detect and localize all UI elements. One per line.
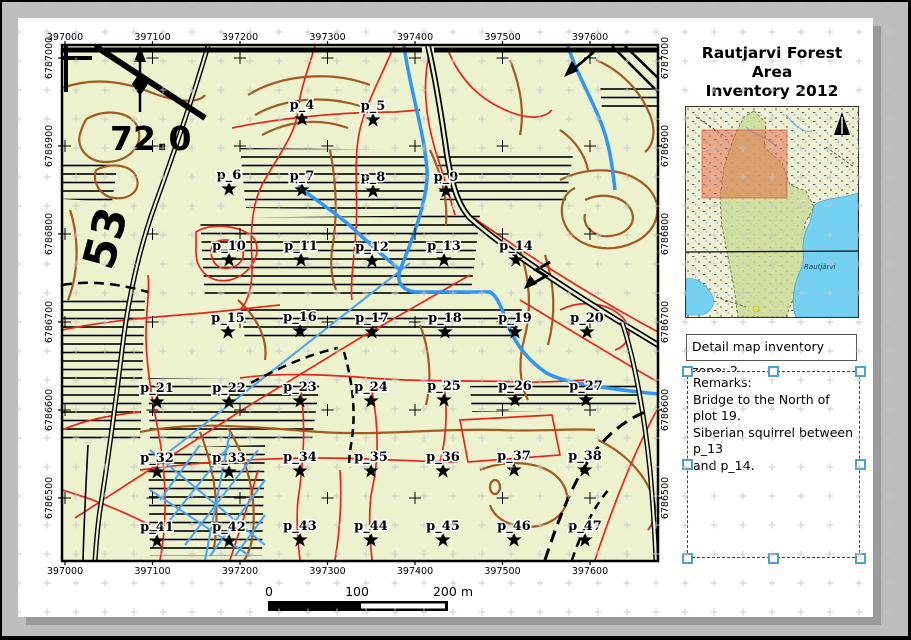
svg-text:p_7: p_7: [290, 169, 315, 184]
svg-text:p_8: p_8: [361, 170, 386, 185]
overview-poi-dot: [753, 306, 759, 312]
remarks-text: Remarks:Bridge to the North of plot 19.S…: [693, 375, 854, 474]
title-line1: Rautjarvi Forest Area: [684, 44, 860, 82]
svg-text:p_6: p_6: [217, 168, 242, 183]
selection-handle-top-center[interactable]: [768, 366, 779, 377]
svg-text:p_18: p_18: [428, 311, 462, 326]
svg-text:p_46: p_46: [497, 519, 531, 534]
svg-text:397300: 397300: [309, 566, 345, 577]
svg-text:p_21: p_21: [140, 381, 174, 396]
svg-text:397200: 397200: [222, 566, 258, 577]
svg-text:6786700: 6786700: [44, 301, 55, 343]
overview-map-item[interactable]: Rautjärvi: [685, 106, 859, 318]
qgis-print-composer-canvas: 72.053 p_4p_5p_6p_7p_8p_9p_10p_11p_12p_1…: [0, 0, 911, 640]
svg-text:397200: 397200: [222, 32, 258, 43]
selection-handle-bottom-right[interactable]: [855, 553, 866, 564]
svg-text:p_43: p_43: [283, 519, 317, 534]
svg-text:397400: 397400: [397, 32, 433, 43]
svg-text:p_25: p_25: [427, 379, 461, 394]
svg-text:p_47: p_47: [568, 519, 602, 534]
svg-text:p_23: p_23: [283, 380, 317, 395]
svg-text:p_33: p_33: [212, 451, 246, 466]
svg-text:397600: 397600: [572, 566, 608, 577]
svg-text:p_16: p_16: [283, 310, 317, 325]
svg-text:p_22: p_22: [212, 381, 246, 396]
svg-text:397100: 397100: [134, 32, 170, 43]
svg-text:397500: 397500: [484, 32, 520, 43]
overview-extent-highlight: [702, 130, 787, 198]
svg-text:p_27: p_27: [569, 379, 603, 394]
svg-text:p_35: p_35: [354, 450, 388, 465]
svg-text:p_19: p_19: [498, 311, 532, 326]
svg-text:p_20: p_20: [570, 311, 604, 326]
selection-handle-mid-left[interactable]: [682, 459, 693, 470]
remarks-text-item[interactable]: Remarks:Bridge to the North of plot 19.S…: [687, 371, 860, 558]
svg-text:p_41: p_41: [140, 520, 174, 535]
svg-text:6787000: 6787000: [44, 37, 55, 79]
svg-text:6786600: 6786600: [660, 389, 671, 431]
svg-text:6786500: 6786500: [660, 477, 671, 519]
svg-text:p_32: p_32: [140, 451, 174, 466]
selection-handle-top-left[interactable]: [682, 366, 693, 377]
svg-text:p_10: p_10: [212, 239, 246, 254]
scalebar[interactable]: 0100200 m: [265, 584, 473, 611]
svg-text:6787000: 6787000: [660, 37, 671, 79]
svg-text:p_45: p_45: [426, 519, 460, 534]
svg-text:6786800: 6786800: [44, 213, 55, 255]
svg-text:100: 100: [345, 584, 369, 599]
svg-text:397400: 397400: [397, 566, 433, 577]
overview-lake-label: Rautjärvi: [804, 263, 836, 271]
svg-text:p_36: p_36: [426, 450, 460, 465]
svg-text:6786900: 6786900: [660, 125, 671, 167]
svg-text:6786600: 6786600: [44, 389, 55, 431]
svg-text:p_15: p_15: [211, 311, 245, 326]
selection-handle-mid-right[interactable]: [855, 459, 866, 470]
svg-text:200 m: 200 m: [433, 584, 473, 599]
detail-zone-label-item[interactable]: Detail map inventory zone: 2: [686, 334, 857, 361]
svg-text:p_9: p_9: [434, 170, 459, 185]
svg-text:397600: 397600: [572, 32, 608, 43]
selection-handle-top-right[interactable]: [855, 366, 866, 377]
svg-text:p_37: p_37: [497, 449, 531, 464]
svg-text:397300: 397300: [309, 32, 345, 43]
svg-text:p_34: p_34: [283, 450, 317, 465]
svg-text:p_14: p_14: [499, 239, 533, 254]
svg-text:p_17: p_17: [355, 311, 389, 326]
svg-text:6786700: 6786700: [660, 301, 671, 343]
svg-text:p_4: p_4: [290, 98, 315, 113]
svg-text:p_24: p_24: [354, 380, 388, 395]
svg-text:6786500: 6786500: [44, 477, 55, 519]
svg-text:397500: 397500: [484, 566, 520, 577]
svg-text:72.0: 72.0: [110, 119, 191, 158]
svg-text:6786900: 6786900: [44, 125, 55, 167]
title-line2: Inventory 2012: [684, 82, 860, 101]
svg-text:p_11: p_11: [284, 239, 318, 254]
svg-text:397000: 397000: [47, 566, 83, 577]
svg-text:p_44: p_44: [354, 519, 388, 534]
svg-text:p_5: p_5: [361, 99, 386, 114]
svg-text:6786800: 6786800: [660, 213, 671, 255]
svg-text:p_13: p_13: [427, 239, 461, 254]
svg-text:p_38: p_38: [568, 449, 602, 464]
map-title[interactable]: Rautjarvi Forest Area Inventory 2012: [684, 44, 860, 90]
svg-text:p_12: p_12: [355, 240, 389, 255]
selection-handle-bottom-left[interactable]: [682, 553, 693, 564]
selection-handle-bottom-center[interactable]: [768, 553, 779, 564]
svg-text:p_26: p_26: [498, 379, 532, 394]
svg-text:0: 0: [265, 584, 273, 599]
svg-text:p_42: p_42: [212, 520, 246, 535]
svg-text:397100: 397100: [134, 566, 170, 577]
